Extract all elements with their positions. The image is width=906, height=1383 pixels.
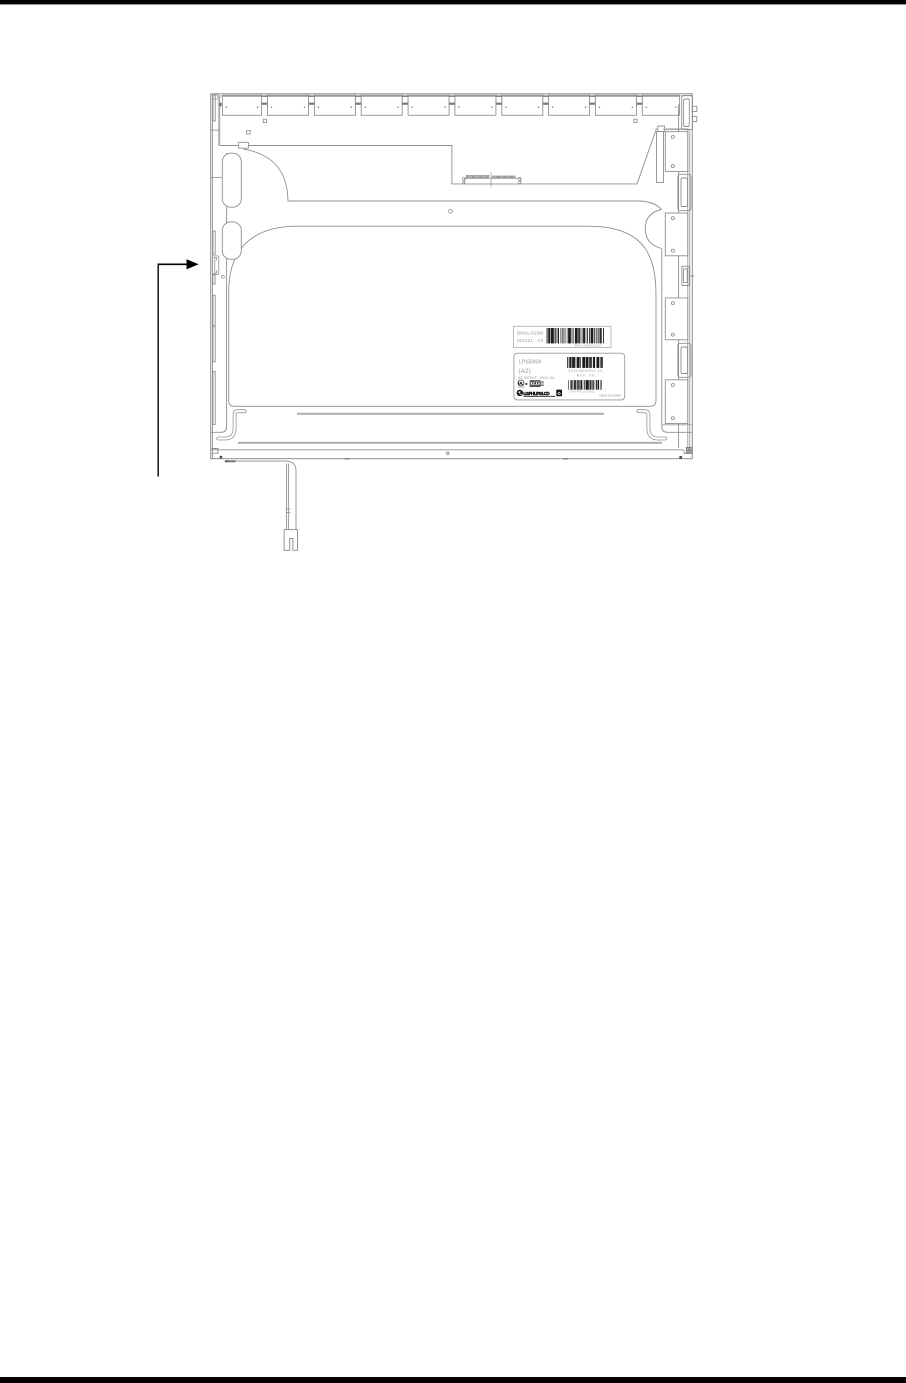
svg-text:LG.PHILIPS LCD: LG.PHILIPS LCD	[523, 391, 550, 396]
svg-text:T06YPGL0C0S02: T06YPGL0C0S02	[569, 390, 595, 394]
svg-text:LISTED: LISTED	[518, 387, 525, 389]
svg-text:021221 A3: 021221 A3	[517, 338, 543, 343]
svg-text:(A2): (A2)	[518, 368, 531, 375]
svg-text:MADE IN KOREA: MADE IN KOREA	[599, 394, 622, 398]
svg-text:*B041L01SM0221001*: *B041L01SM0221001*	[574, 344, 602, 348]
svg-text:B041L-01SM: B041L-01SM	[517, 331, 543, 336]
svg-text:022CB002R1 10: 022CB002R1 10	[568, 369, 602, 373]
svg-text:Rev. 00: Rev. 00	[577, 374, 594, 378]
svg-text:US PATENT : 5XXX,XX: US PATENT : 5XXX,XX	[518, 376, 555, 380]
svg-text:LP150X04: LP150X04	[519, 360, 541, 366]
svg-text:UL: UL	[518, 382, 524, 386]
